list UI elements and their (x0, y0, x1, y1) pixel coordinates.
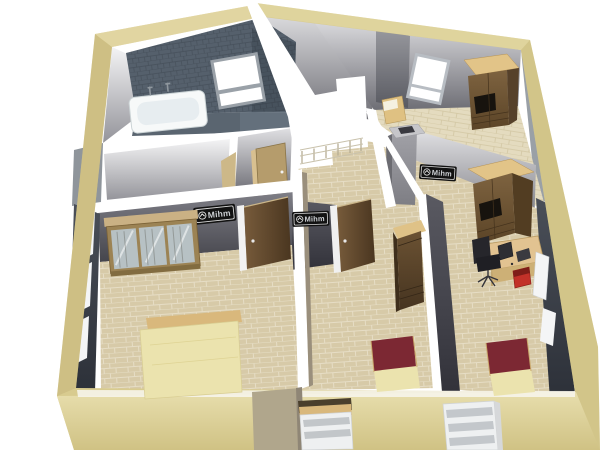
front-window-left (298, 398, 353, 450)
bed-blanket (140, 321, 242, 399)
watermark-text: Mihm (431, 168, 452, 178)
watermark-plate: Mihm (419, 164, 457, 182)
right-wall-window (533, 252, 549, 300)
bathroom-window (210, 52, 266, 110)
door-handle (343, 239, 346, 242)
building-render: Mihm Mihm Mihm (0, 0, 600, 450)
open-door-left-bedroom (237, 197, 291, 271)
bed-blanket-maroon (371, 336, 416, 372)
door-handle (251, 239, 254, 242)
tall-wardrobe (393, 220, 426, 312)
bed-middle-bedroom (371, 336, 420, 392)
red-box (513, 267, 531, 288)
floorplan-render: Mihm Mihm Mihm (0, 0, 600, 450)
small-bed (382, 96, 406, 124)
mouse (511, 263, 513, 265)
ne-bedroom-back-wall-shadow (376, 28, 410, 108)
watermark-plate: Mihm (292, 211, 329, 227)
bed-right-bedroom (486, 338, 535, 396)
watermark-text: Mihm (304, 214, 325, 224)
right-wardrobe (468, 159, 534, 244)
front-party-wall-band (252, 388, 302, 450)
glass-wardrobe (104, 210, 203, 277)
hall-door-knob (281, 171, 284, 174)
ne-wardrobe (464, 54, 519, 130)
bed-left-bedroom (140, 310, 242, 399)
front-window-right (443, 401, 503, 450)
open-door-middle-bedroom (330, 199, 375, 273)
